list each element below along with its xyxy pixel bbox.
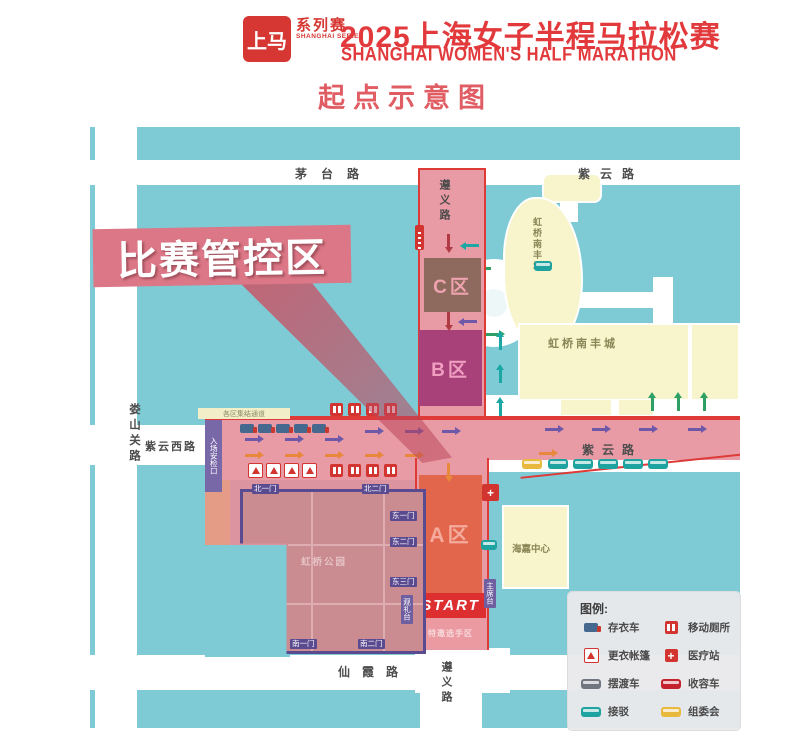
zone-b: B区	[419, 330, 482, 406]
legend-item: 更衣帐篷	[580, 648, 650, 663]
changing-tent-icon	[248, 463, 263, 478]
changing-tent-icon	[284, 463, 299, 478]
building-nanfeng-south: 虹桥南丰城	[518, 323, 690, 401]
road-label-ziyun-east: 紫云路	[582, 441, 642, 458]
flow-arrow-icon	[325, 454, 338, 457]
flow-arrow-icon	[539, 452, 552, 455]
park-path	[383, 492, 385, 651]
road-label-xianxia: 仙霞路	[338, 663, 410, 680]
legend-title: 图例:	[580, 600, 608, 617]
mobile-toilet-icon	[330, 464, 343, 477]
legend-label: 组委会	[688, 704, 720, 719]
transfer-bus-icon	[548, 459, 568, 469]
transfer-bus-icon	[598, 459, 618, 469]
security-check-strip: 入场安检口	[205, 420, 222, 492]
legend-label: 医疗站	[688, 648, 720, 663]
legend-item: 组委会	[660, 704, 720, 719]
flow-arrow-icon	[245, 438, 258, 441]
legend-label: 移动厕所	[688, 620, 730, 635]
road-label-zunyi-north: 遵义路	[436, 179, 452, 224]
gate-north-1: 北一门	[252, 484, 279, 494]
legend-label: 接驳	[608, 704, 629, 719]
transfer-bus-icon	[648, 459, 668, 469]
mobile-toilet-icon	[415, 225, 424, 250]
gate-south-2: 南二门	[358, 639, 385, 649]
building-label: 虹桥南丰城	[548, 335, 618, 351]
changing-tent-icon	[580, 649, 602, 663]
baggage-truck-icon	[580, 621, 602, 635]
gate-east-3: 东三门	[390, 577, 417, 587]
flow-arrow-icon	[639, 428, 652, 431]
gate-south-1: 南一门	[290, 639, 317, 649]
building-block	[560, 399, 612, 416]
road-zunyi-south-gap	[415, 648, 510, 693]
transfer-bus-icon	[580, 705, 602, 719]
changing-tent-icon	[302, 463, 317, 478]
committee-bus-icon	[660, 705, 682, 719]
transfer-bus-icon	[623, 459, 643, 469]
sweep-bus-icon	[660, 677, 682, 691]
mobile-toilet-icon	[348, 403, 361, 416]
legend-item: 存衣车	[580, 620, 640, 635]
building-block	[618, 399, 654, 416]
flow-arrow-icon	[703, 398, 706, 411]
viewing-stand: 观礼台	[401, 595, 413, 624]
page-title: 起点示意图	[0, 76, 811, 115]
flow-arrow-icon	[651, 398, 654, 411]
flow-arrow-icon	[466, 244, 479, 247]
flow-arrow-icon	[464, 320, 477, 323]
teal-notch	[205, 545, 290, 657]
legend-item: 接驳	[580, 704, 629, 719]
building-haijia: 海嘉中心	[502, 505, 569, 589]
control-zone-banner: 比赛管控区	[93, 225, 352, 287]
flow-arrow-icon	[325, 438, 338, 441]
zone-a: A区	[419, 475, 482, 593]
medical-station-icon: +	[660, 649, 682, 663]
road-label-loushanguan: 娄山关路	[126, 403, 142, 465]
flow-arrow-icon	[499, 337, 502, 350]
mobile-toilet-icon	[330, 403, 343, 416]
transfer-bus-icon	[573, 459, 593, 469]
flow-arrow-icon	[499, 403, 502, 416]
legend-label: 更衣帐篷	[608, 648, 650, 663]
flow-arrow-icon	[447, 463, 450, 476]
baggage-truck-icon	[258, 424, 272, 433]
changing-tent-icon	[266, 463, 281, 478]
zone-c: C区	[424, 258, 481, 312]
baggage-truck-icon	[276, 424, 290, 433]
road-label-ziyun-west: 紫云西路	[145, 438, 197, 454]
gate-east-1: 东一门	[390, 511, 417, 521]
mobile-toilet-icon	[366, 464, 379, 477]
flow-arrow-icon	[545, 428, 558, 431]
park-path	[311, 492, 313, 651]
flow-arrow-icon	[677, 398, 680, 411]
assembly-corridor-note: 各区集结通道	[198, 408, 290, 419]
flow-arrow-icon	[285, 438, 298, 441]
shuttle-bus-icon	[580, 677, 602, 691]
mobile-toilet-icon	[660, 621, 682, 635]
page: { "header": { "seal_text": "上马", "series…	[0, 0, 811, 752]
baggage-truck-icon	[312, 424, 326, 433]
flow-arrow-icon	[447, 312, 450, 325]
committee-bus-icon	[522, 459, 542, 469]
building-block	[690, 323, 740, 401]
mobile-toilet-icon	[348, 464, 361, 477]
event-title-english: SHANGHAI WOMEN'S HALF MARATHON	[341, 45, 677, 67]
flow-arrow-icon	[245, 454, 258, 457]
gate-east-2: 东二门	[390, 537, 417, 547]
park-label: 虹桥公园	[301, 554, 347, 568]
transfer-bus-icon	[534, 261, 552, 271]
chairman-stand: 主席台	[484, 579, 496, 608]
legend-item: 移动厕所	[660, 620, 730, 635]
mobile-toilet-icon	[384, 464, 397, 477]
legend-label: 收容车	[688, 676, 720, 691]
baggage-truck-icon	[294, 424, 308, 433]
legend-item: 摆渡车	[580, 676, 640, 691]
header: 上马 系列赛 SHANGHAI SERIES 2025上海女子半程马拉松赛 SH…	[0, 0, 811, 125]
legend-label: 存衣车	[608, 620, 640, 635]
legend: 图例: 存衣车 移动厕所 更衣帐篷 + 医疗站 摆渡车 收容车 接驳	[568, 592, 740, 730]
flow-arrow-icon	[447, 234, 450, 247]
medical-station-icon: +	[482, 484, 499, 501]
road-label-ziyun-ne: 紫云路	[578, 165, 644, 182]
flow-arrow-icon	[499, 370, 502, 383]
shanghai-marathon-seal-logo: 上马	[243, 16, 291, 62]
flow-arrow-icon	[592, 428, 605, 431]
building-label: 海嘉中心	[512, 541, 550, 555]
road-label-zunyi-south: 遵义路	[438, 661, 454, 706]
transfer-bus-icon	[481, 540, 497, 550]
legend-label: 摆渡车	[608, 676, 640, 691]
vip-runner-zone: 特邀选手区	[418, 618, 483, 648]
baggage-truck-icon	[240, 424, 254, 433]
flow-arrow-icon	[442, 430, 455, 433]
flow-arrow-icon	[688, 428, 701, 431]
road-label-maotai: 茅台路	[295, 165, 373, 182]
legend-item: + 医疗站	[660, 648, 720, 663]
legend-item: 收容车	[660, 676, 720, 691]
flow-arrow-icon	[365, 430, 378, 433]
flow-arrow-icon	[285, 454, 298, 457]
flow-arrow-icon	[365, 454, 378, 457]
gate-north-2: 北二门	[362, 484, 389, 494]
